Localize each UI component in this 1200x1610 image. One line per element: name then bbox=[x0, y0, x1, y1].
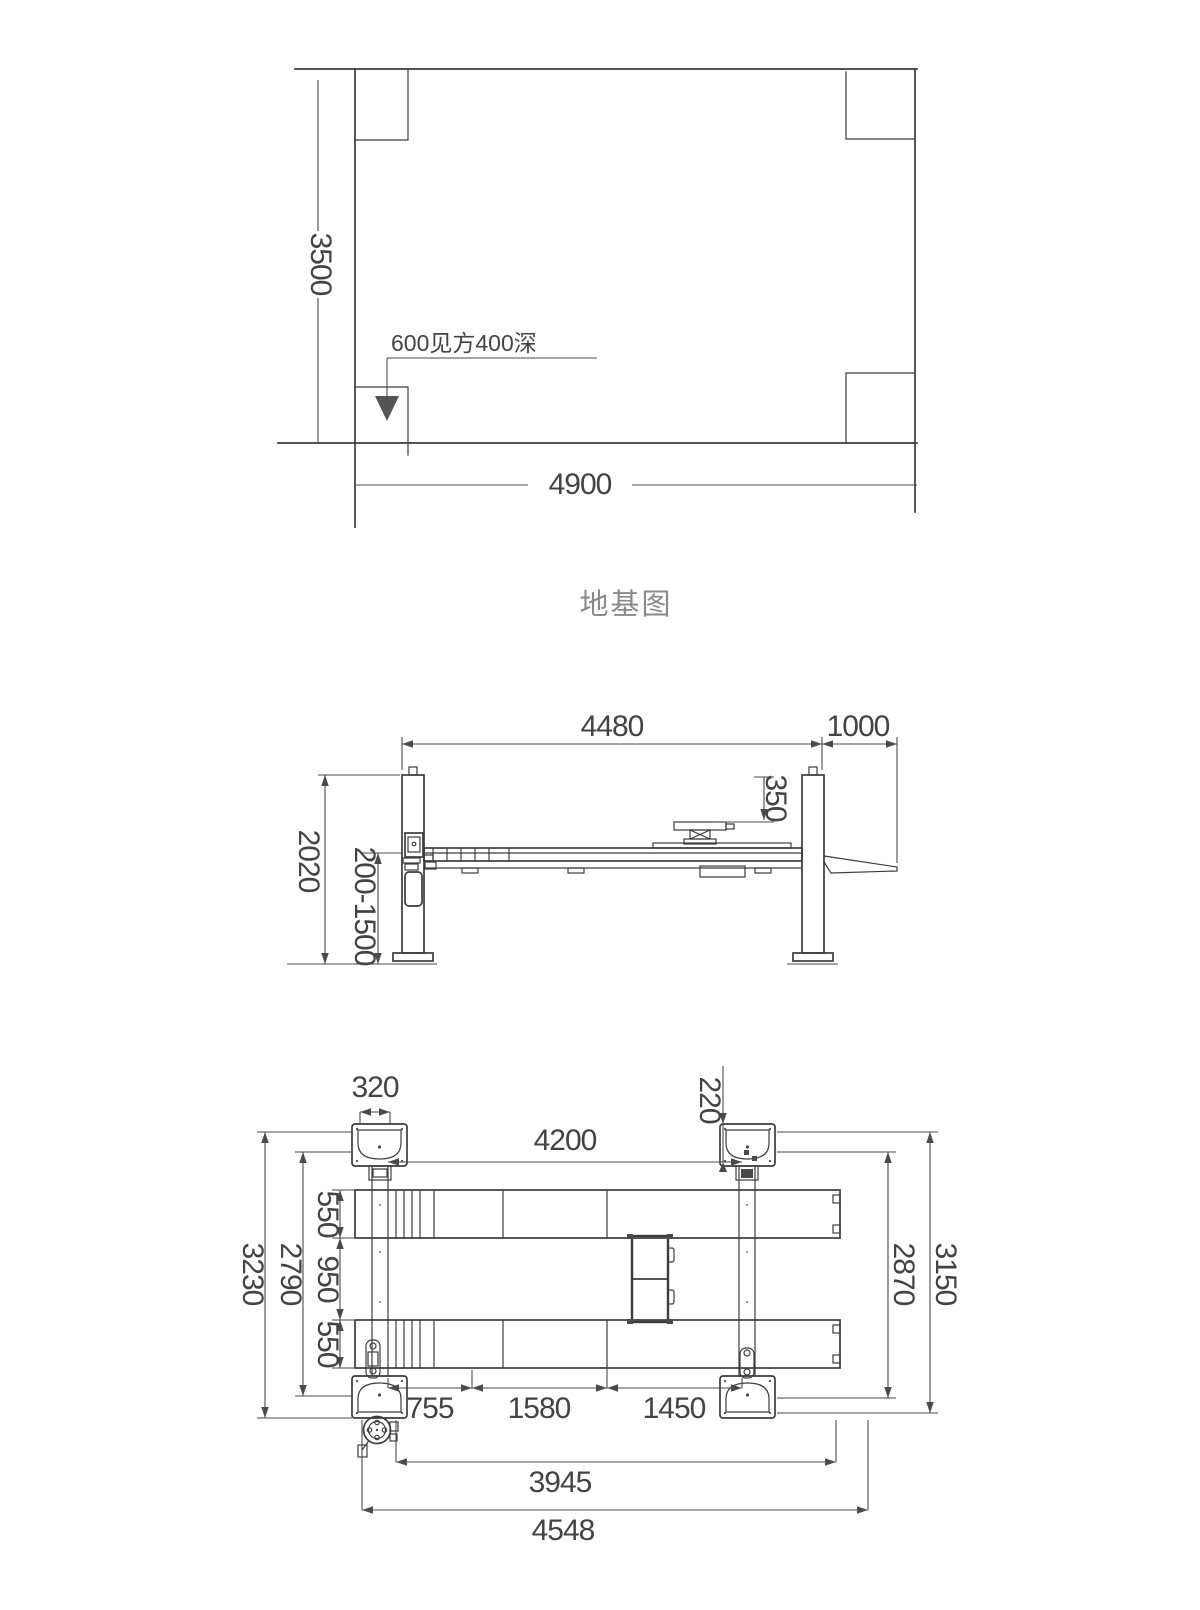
drawing-sheet: 3500 4900 600见方400深 地基图 bbox=[0, 0, 1200, 1610]
dim-ramp-1000 bbox=[822, 737, 897, 863]
foundation-plan-view: 3500 4900 600见方400深 地基图 bbox=[278, 69, 917, 621]
post-plate-bottom-left bbox=[352, 1376, 407, 1418]
dim-label-2870: 2870 bbox=[887, 1243, 920, 1306]
dim-inner-length-3945 bbox=[396, 1420, 836, 1462]
dim-label-320: 320 bbox=[351, 1071, 398, 1104]
dim-label-220: 220 bbox=[693, 1076, 726, 1123]
rolling-jack-plan bbox=[627, 1234, 674, 1324]
dim-label-4200: 4200 bbox=[534, 1124, 597, 1157]
anchor-pocket-top-right bbox=[846, 72, 915, 139]
plan-view: 320 220 4200 550 950 550 2790 3230 2870 … bbox=[236, 1066, 962, 1547]
cross-rail-right bbox=[736, 1166, 758, 1378]
dim-label-4900: 4900 bbox=[549, 468, 612, 501]
dim-label-350: 350 bbox=[759, 774, 792, 821]
lock-assembly-bottom-left bbox=[366, 1340, 380, 1378]
dim-label-550-bottom: 550 bbox=[311, 1320, 344, 1367]
side-elevation-view: 4480 1000 350 2020 200-1500 bbox=[287, 710, 897, 966]
dim-label-4548: 4548 bbox=[532, 1514, 595, 1547]
dim-label-3150: 3150 bbox=[929, 1243, 962, 1306]
power-unit bbox=[405, 872, 422, 906]
dim-right-inner-2870 bbox=[777, 1152, 896, 1398]
dim-label-3500: 3500 bbox=[304, 233, 337, 296]
dim-carriage-320 bbox=[360, 1112, 390, 1124]
runway-top bbox=[355, 1190, 840, 1238]
runway-side bbox=[424, 843, 802, 877]
dim-label-755: 755 bbox=[406, 1392, 453, 1425]
post-plate-top-right bbox=[720, 1124, 775, 1166]
dim-label-550-top: 550 bbox=[311, 1190, 344, 1237]
dim-label-2020: 2020 bbox=[292, 830, 325, 893]
dim-label-1000: 1000 bbox=[827, 710, 890, 743]
post-plate-top-left bbox=[352, 1124, 407, 1166]
dim-label-2790: 2790 bbox=[274, 1243, 307, 1306]
column-right bbox=[793, 767, 833, 961]
anchor-pocket-top-left bbox=[355, 69, 408, 140]
pit-marker-triangle bbox=[375, 396, 399, 421]
hydraulic-pump bbox=[358, 1417, 398, 1458]
safety-lock bbox=[403, 858, 420, 870]
lift-technical-drawing: 3500 4900 600见方400深 地基图 bbox=[0, 0, 1200, 1610]
dim-label-lift-range: 200-1500 bbox=[348, 847, 381, 966]
dim-label-3230: 3230 bbox=[236, 1243, 269, 1306]
dim-length-segments bbox=[388, 1324, 742, 1388]
dim-label-950: 950 bbox=[311, 1255, 344, 1302]
foundation-outline bbox=[278, 69, 917, 527]
rolling-jack-side bbox=[674, 822, 734, 844]
pit-note-label: 600见方400深 bbox=[391, 330, 537, 356]
lock-assembly-bottom-right bbox=[740, 1348, 754, 1378]
dim-label-1450: 1450 bbox=[643, 1392, 706, 1425]
dim-label-1580: 1580 bbox=[508, 1392, 571, 1425]
drive-ramp bbox=[824, 856, 897, 873]
anchor-pocket-bottom-right bbox=[846, 373, 915, 443]
post-plate-bottom-right bbox=[720, 1376, 775, 1418]
control-box bbox=[405, 833, 423, 857]
dim-label-4480: 4480 bbox=[581, 710, 644, 743]
cross-rail-left bbox=[366, 1166, 391, 1378]
dim-label-3945: 3945 bbox=[529, 1466, 592, 1499]
foundation-plan-title: 地基图 bbox=[579, 588, 672, 621]
runway-bottom bbox=[355, 1320, 840, 1368]
dim-overall-length-4548 bbox=[362, 1420, 868, 1510]
